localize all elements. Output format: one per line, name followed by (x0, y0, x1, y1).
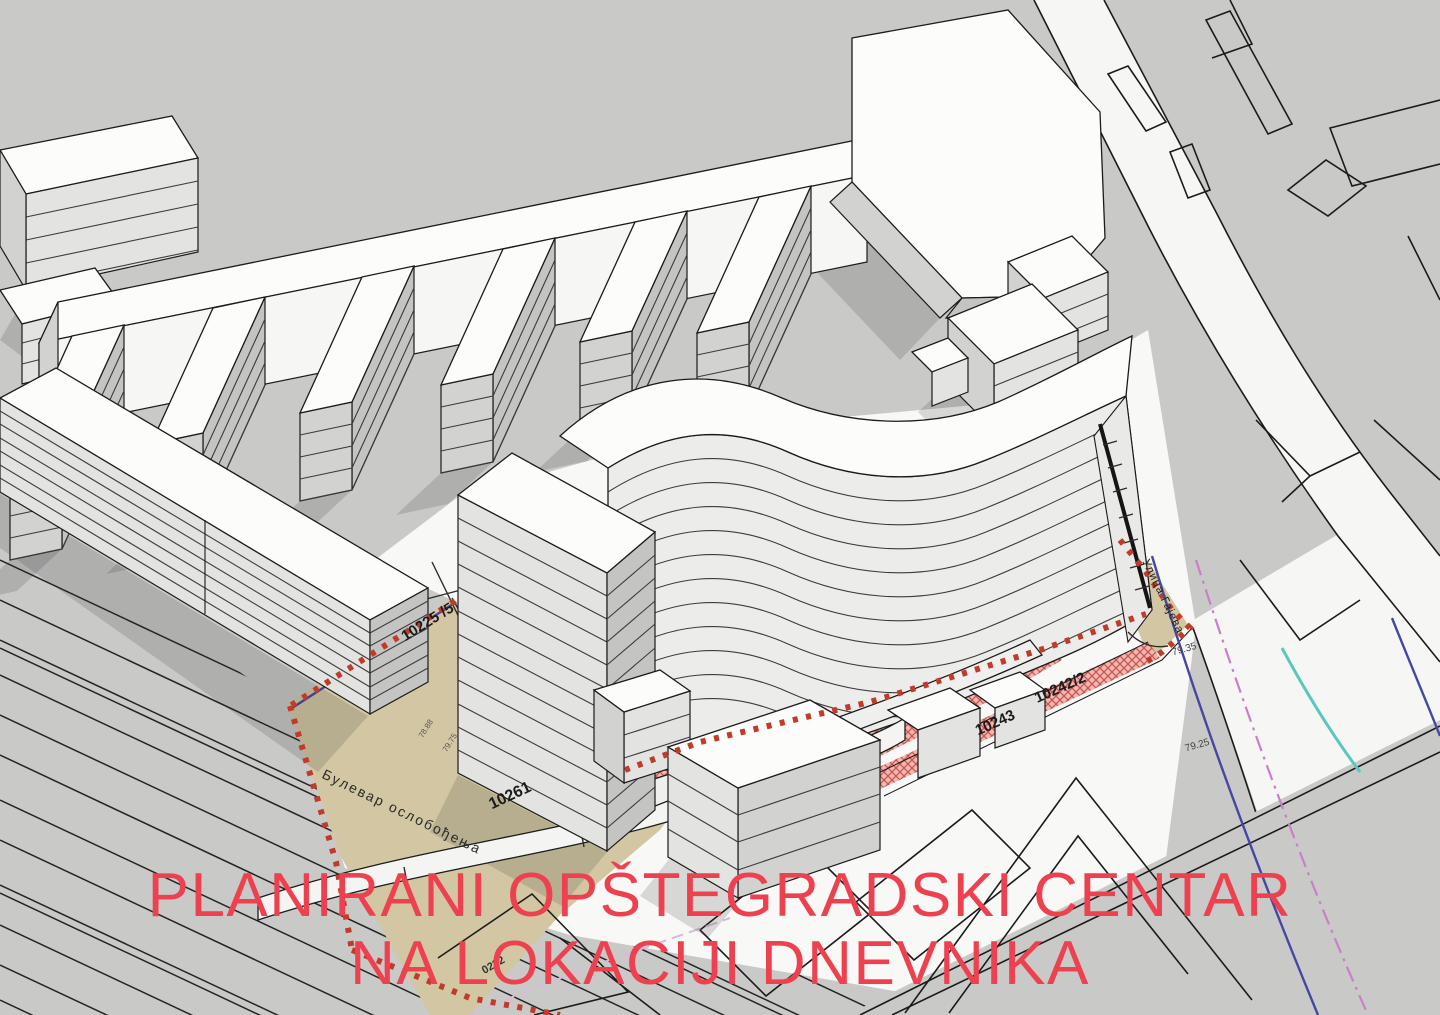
site-plan-rendering: 10225 /5 10261 10243 10242/2 0232 Булева… (0, 0, 1440, 1015)
title-line-1: PLANIRANI OPŠTEGRADSKI CENTAR (0, 860, 1440, 931)
title-line-2: NA LOKACIJI DNEVNIKA (0, 928, 1440, 999)
